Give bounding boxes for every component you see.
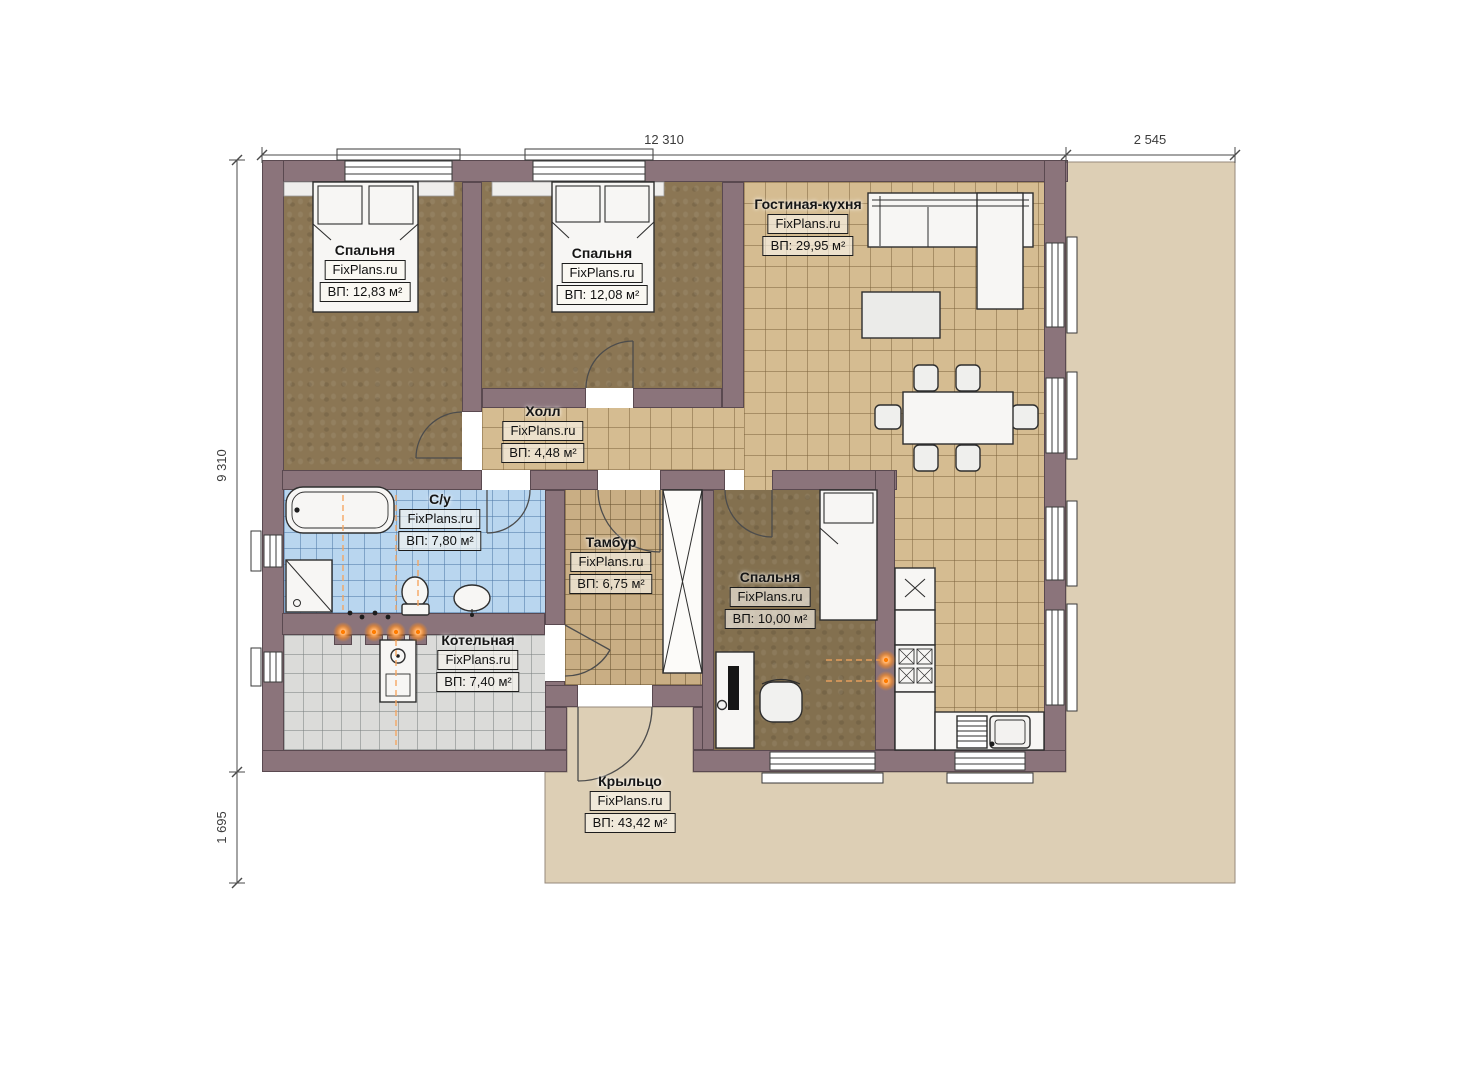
- room-label-tambur: Тамбур FixPlans.ru ВП: 6,75 м²: [569, 535, 652, 594]
- room-label-hall: Холл FixPlans.ru ВП: 4,48 м²: [501, 404, 584, 463]
- room-area: ВП: 7,40 м²: [436, 672, 519, 692]
- dim-left-height: 9 310: [214, 449, 229, 482]
- room-label-bedroom1: Спальня FixPlans.ru ВП: 12,83 м²: [320, 243, 411, 302]
- room-label-porch: Крыльцо FixPlans.ru ВП: 43,42 м²: [585, 774, 676, 833]
- floor-bedroom1: [284, 182, 462, 470]
- room-area: ВП: 29,95 м²: [763, 236, 854, 256]
- wall-bedroom3-left: [702, 490, 714, 750]
- room-name: Спальня: [572, 246, 632, 261]
- watermark: FixPlans.ru: [561, 263, 642, 283]
- room-name: С/у: [429, 492, 451, 507]
- wall-bedroom3-right: [875, 470, 895, 750]
- room-area: ВП: 12,83 м²: [320, 282, 411, 302]
- wall-living-left: [722, 182, 744, 408]
- room-area: ВП: 4,48 м²: [501, 443, 584, 463]
- wall-hall-bottom-c: [660, 470, 725, 490]
- wall-recess-left: [545, 707, 567, 750]
- watermark: FixPlans.ru: [570, 552, 651, 572]
- window-sill: [337, 149, 460, 160]
- room-name: Спальня: [740, 570, 800, 585]
- window-sill: [1067, 604, 1077, 711]
- watermark: FixPlans.ru: [437, 650, 518, 670]
- room-label-bedroom2: Спальня FixPlans.ru ВП: 12,08 м²: [557, 246, 648, 305]
- radiator-nub: [387, 635, 405, 645]
- watermark: FixPlans.ru: [767, 214, 848, 234]
- window-sill: [251, 531, 261, 571]
- radiator-nub: [334, 635, 352, 645]
- wall-hall-bottom-b: [530, 470, 598, 490]
- watermark: FixPlans.ru: [589, 791, 670, 811]
- window-sill: [525, 149, 653, 160]
- radiator-nub: [409, 635, 427, 645]
- window-sill: [1067, 372, 1077, 459]
- room-label-bedroom3: Спальня FixPlans.ru ВП: 10,00 м²: [725, 570, 816, 629]
- room-area: ВП: 7,80 м²: [398, 531, 481, 551]
- dim-top-right: 2 545: [1134, 132, 1167, 147]
- wall-hall-bottom-a: [282, 470, 482, 490]
- room-area: ВП: 6,75 м²: [569, 574, 652, 594]
- room-name: Гостиная-кухня: [754, 197, 861, 212]
- room-label-bathroom: С/у FixPlans.ru ВП: 7,80 м²: [398, 492, 481, 551]
- room-label-boiler: Котельная FixPlans.ru ВП: 7,40 м²: [436, 633, 519, 692]
- room-area: ВП: 43,42 м²: [585, 813, 676, 833]
- wall-outer-top: [262, 160, 1068, 182]
- wall-tambur-bottom-left: [545, 685, 578, 707]
- wall-outer-bottom-left: [262, 750, 567, 772]
- floor-plan: 12 310 2 545 9 310 1 695 Спальня FixPlan…: [0, 0, 1473, 1080]
- watermark: FixPlans.ru: [399, 509, 480, 529]
- window-sill: [1067, 237, 1077, 333]
- wall-bed1-bed2: [462, 182, 482, 412]
- window-sill: [251, 648, 261, 686]
- watermark: FixPlans.ru: [729, 587, 810, 607]
- radiator-nub: [365, 635, 383, 645]
- dim-top-width: 12 310: [644, 132, 684, 147]
- door-arc-entrance: [578, 707, 652, 781]
- wall-outer-right: [1044, 160, 1066, 772]
- room-area: ВП: 10,00 м²: [725, 609, 816, 629]
- wall-bed2-bottom-b: [633, 388, 722, 408]
- room-name: Тамбур: [586, 535, 637, 550]
- room-name: Спальня: [335, 243, 395, 258]
- room-area: ВП: 12,08 м²: [557, 285, 648, 305]
- wall-outer-bottom-right: [693, 750, 1066, 772]
- room-name: Котельная: [441, 633, 514, 648]
- window-sill: [762, 773, 883, 783]
- room-label-living-kitchen: Гостиная-кухня FixPlans.ru ВП: 29,95 м²: [754, 197, 861, 256]
- wall-outer-left: [262, 160, 284, 772]
- room-name: Холл: [525, 404, 560, 419]
- dim-left-lower: 1 695: [214, 811, 229, 844]
- watermark: FixPlans.ru: [324, 260, 405, 280]
- window-sill: [1067, 501, 1077, 586]
- room-name: Крыльцо: [598, 774, 662, 789]
- watermark: FixPlans.ru: [502, 421, 583, 441]
- wall-bathroom-right: [545, 490, 565, 625]
- window-sill: [947, 773, 1033, 783]
